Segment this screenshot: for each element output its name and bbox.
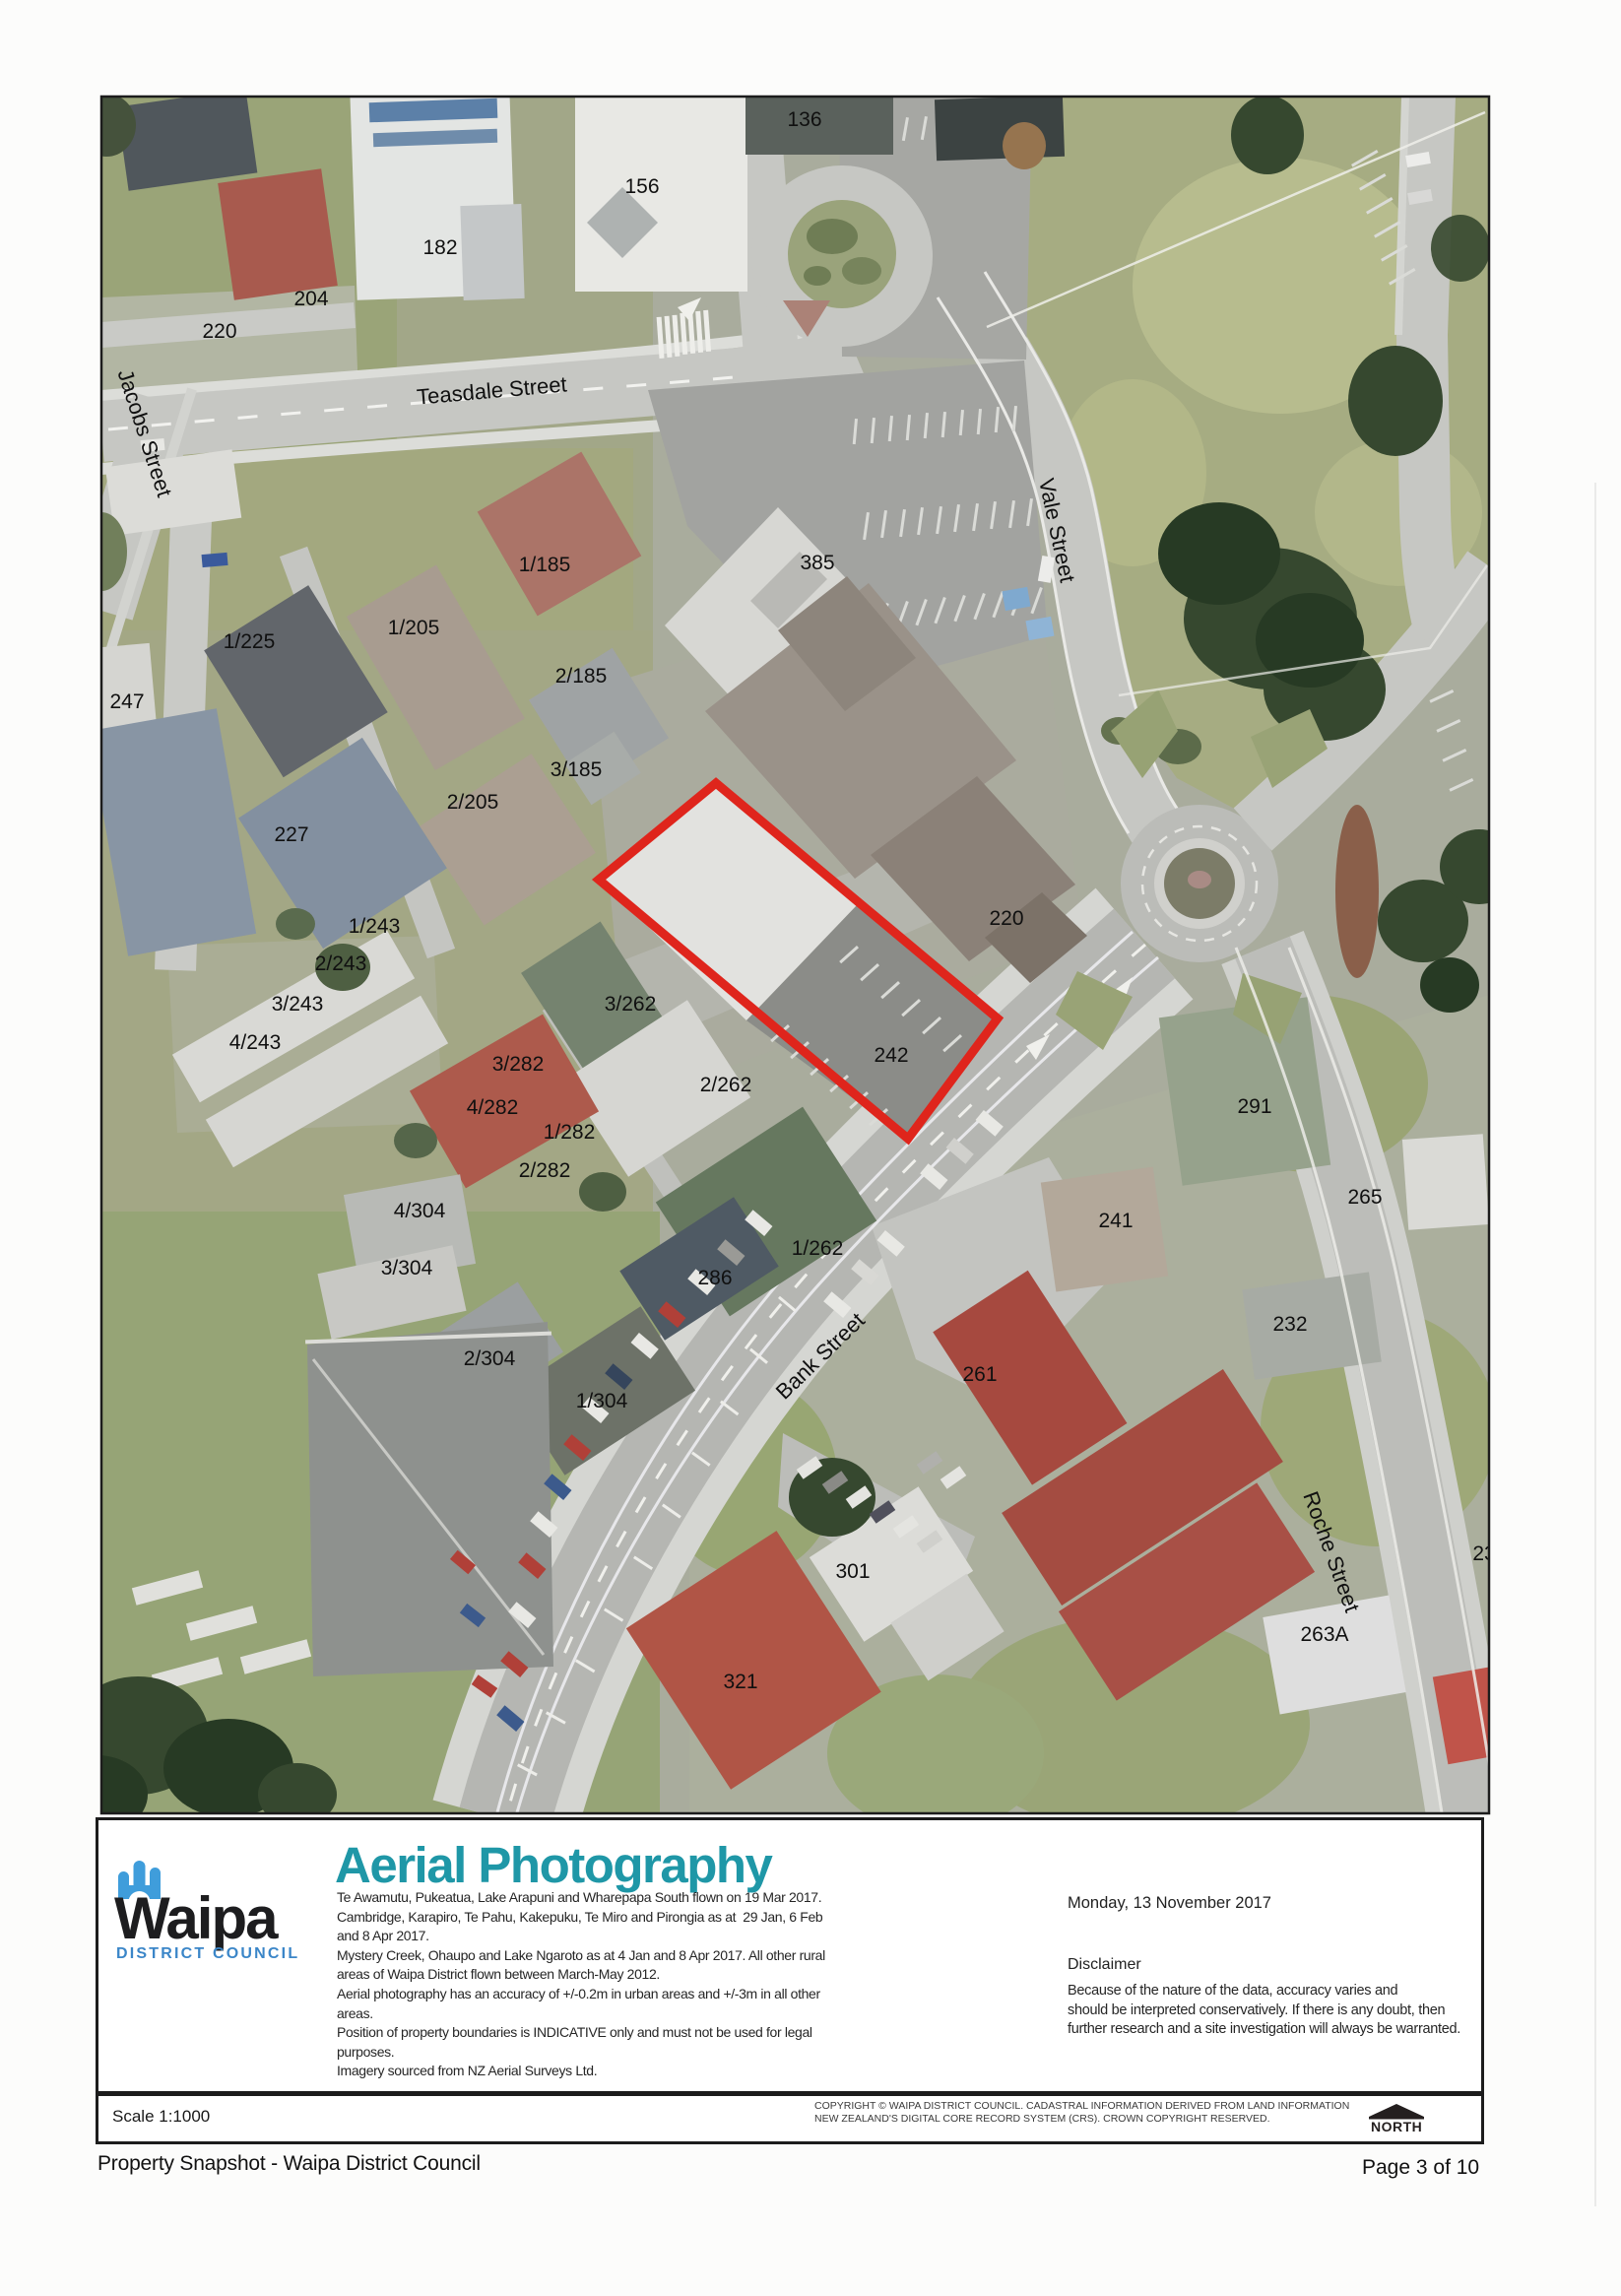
svg-text:227: 227 <box>274 823 308 846</box>
svg-text:321: 321 <box>723 1671 757 1693</box>
svg-text:2/205: 2/205 <box>447 791 499 814</box>
svg-text:2/304: 2/304 <box>464 1347 516 1370</box>
svg-text:182: 182 <box>422 236 457 259</box>
svg-text:1/185: 1/185 <box>519 554 571 576</box>
svg-text:385: 385 <box>800 552 834 574</box>
svg-text:301: 301 <box>835 1560 870 1583</box>
svg-text:247: 247 <box>109 690 144 713</box>
svg-text:291: 291 <box>1237 1095 1271 1118</box>
svg-text:242: 242 <box>874 1044 908 1067</box>
svg-text:204: 204 <box>293 288 328 310</box>
svg-text:1/205: 1/205 <box>388 617 440 639</box>
svg-text:4/243: 4/243 <box>229 1031 282 1054</box>
svg-text:1/243: 1/243 <box>349 915 401 938</box>
svg-text:261: 261 <box>962 1363 997 1386</box>
svg-text:23: 23 <box>1472 1542 1495 1565</box>
svg-text:3/185: 3/185 <box>551 758 603 781</box>
svg-text:DISTRICT COUNCIL: DISTRICT COUNCIL <box>116 1945 299 1962</box>
svg-text:1/282: 1/282 <box>544 1121 596 1144</box>
svg-text:136: 136 <box>787 108 821 131</box>
svg-text:3/282: 3/282 <box>492 1053 545 1076</box>
svg-text:232: 232 <box>1272 1313 1307 1336</box>
svg-text:220: 220 <box>202 320 236 343</box>
svg-text:4/304: 4/304 <box>394 1200 446 1222</box>
svg-text:3/304: 3/304 <box>381 1257 433 1279</box>
svg-text:2/282: 2/282 <box>519 1159 571 1182</box>
svg-text:4/282: 4/282 <box>467 1096 519 1119</box>
svg-text:Waipa: Waipa <box>114 1885 279 1951</box>
svg-text:2/243: 2/243 <box>315 952 367 975</box>
svg-text:286: 286 <box>697 1267 732 1289</box>
svg-text:NORTH: NORTH <box>1371 2119 1422 2134</box>
svg-text:3/243: 3/243 <box>272 993 324 1016</box>
svg-text:241: 241 <box>1098 1210 1133 1232</box>
svg-text:156: 156 <box>624 175 659 198</box>
svg-text:1/262: 1/262 <box>792 1237 844 1260</box>
svg-text:3/262: 3/262 <box>605 993 657 1016</box>
svg-text:265: 265 <box>1347 1186 1382 1209</box>
svg-text:263A: 263A <box>1300 1623 1348 1646</box>
svg-text:1/225: 1/225 <box>224 630 276 653</box>
svg-text:1/304: 1/304 <box>576 1390 628 1412</box>
svg-text:2/185: 2/185 <box>555 665 608 688</box>
svg-text:2/262: 2/262 <box>700 1074 752 1096</box>
svg-text:220: 220 <box>989 907 1023 930</box>
